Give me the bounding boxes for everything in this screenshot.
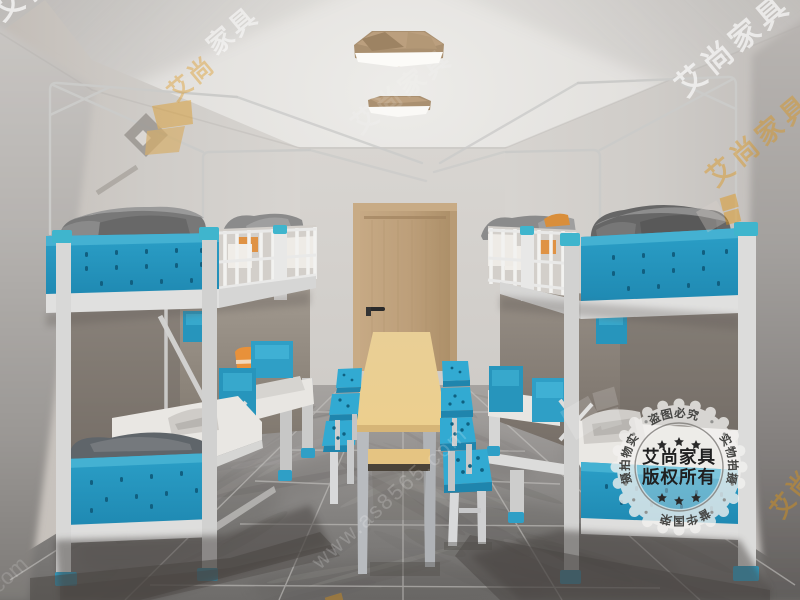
svg-text:版权所有: 版权所有 (642, 467, 716, 487)
svg-text:拍: 拍 (618, 459, 632, 471)
svg-text:艾尚家具: 艾尚家具 (642, 447, 716, 467)
svg-text:拍: 拍 (726, 459, 740, 471)
svg-text:国: 国 (673, 514, 685, 528)
svg-text:必: 必 (673, 406, 686, 420)
